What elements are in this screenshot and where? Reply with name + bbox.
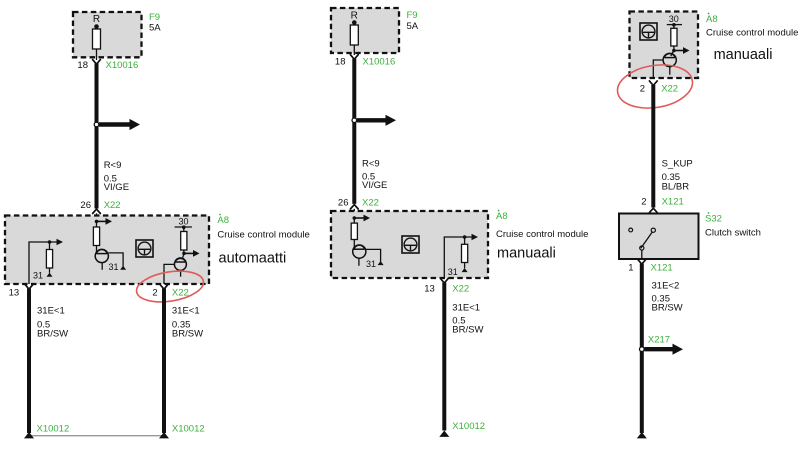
svg-text:5A: 5A (407, 21, 419, 32)
svg-text:BR/SW: BR/SW (172, 329, 203, 340)
svg-text:A8: A8 (496, 211, 508, 222)
svg-text:31E<1: 31E<1 (452, 303, 480, 314)
svg-text:BL/BR: BL/BR (662, 182, 690, 193)
svg-text:2: 2 (641, 197, 646, 208)
svg-text:X217: X217 (648, 334, 670, 345)
svg-text:31: 31 (109, 262, 119, 272)
svg-text:31E<1: 31E<1 (37, 306, 65, 317)
svg-text:S_KUP: S_KUP (662, 159, 693, 170)
svg-text:BR/SW: BR/SW (452, 325, 483, 336)
svg-text:X10012: X10012 (172, 424, 205, 435)
svg-text:manuaali: manuaali (714, 47, 773, 63)
svg-text:1: 1 (628, 263, 633, 274)
svg-text:R: R (93, 14, 100, 25)
svg-text:31E<1: 31E<1 (172, 306, 200, 317)
svg-text:X10016: X10016 (106, 60, 139, 71)
svg-text:X22: X22 (452, 283, 469, 294)
svg-text:X10012: X10012 (452, 421, 485, 432)
svg-text:X22: X22 (661, 84, 678, 95)
svg-text:X22: X22 (104, 200, 121, 211)
svg-text:X121: X121 (662, 197, 684, 208)
svg-text:13: 13 (424, 283, 435, 294)
svg-text:31: 31 (366, 259, 376, 269)
svg-text:Cruise control module: Cruise control module (706, 27, 798, 38)
svg-text:30: 30 (669, 14, 679, 24)
svg-text:2: 2 (640, 84, 645, 95)
svg-text:Cruise control module: Cruise control module (496, 229, 588, 240)
svg-text:A8: A8 (706, 14, 718, 25)
svg-text:R: R (351, 10, 358, 21)
svg-text:manuaali: manuaali (497, 246, 556, 262)
svg-text:A8: A8 (217, 215, 229, 226)
svg-text:VI/GE: VI/GE (104, 182, 129, 193)
svg-text:VI/GE: VI/GE (362, 180, 387, 191)
svg-text:26: 26 (338, 198, 349, 209)
svg-text:X22: X22 (362, 198, 379, 209)
svg-text:F9: F9 (149, 12, 160, 23)
svg-text:13: 13 (9, 287, 20, 298)
svg-text:5A: 5A (149, 23, 161, 34)
svg-text:31E<2: 31E<2 (652, 281, 680, 292)
svg-text:BR/SW: BR/SW (37, 329, 68, 340)
svg-text:Clutch switch: Clutch switch (705, 228, 761, 239)
svg-text:Cruise control module: Cruise control module (217, 230, 309, 241)
svg-text:BR/SW: BR/SW (652, 302, 683, 313)
svg-text:R<9: R<9 (104, 160, 122, 171)
svg-text:F9: F9 (407, 10, 418, 21)
svg-text:18: 18 (335, 57, 346, 68)
svg-text:2: 2 (152, 288, 157, 299)
svg-text:X121: X121 (651, 263, 673, 274)
svg-text:31: 31 (448, 267, 458, 277)
svg-text:R<9: R<9 (362, 159, 380, 170)
svg-text:30: 30 (178, 216, 188, 226)
svg-text:X10016: X10016 (363, 57, 396, 68)
svg-text:automaatti: automaatti (219, 251, 287, 267)
svg-text:18: 18 (77, 60, 88, 71)
svg-text:X10012: X10012 (37, 424, 70, 435)
svg-text:31: 31 (33, 270, 43, 280)
svg-text:26: 26 (80, 200, 91, 211)
svg-text:S32: S32 (705, 214, 722, 225)
